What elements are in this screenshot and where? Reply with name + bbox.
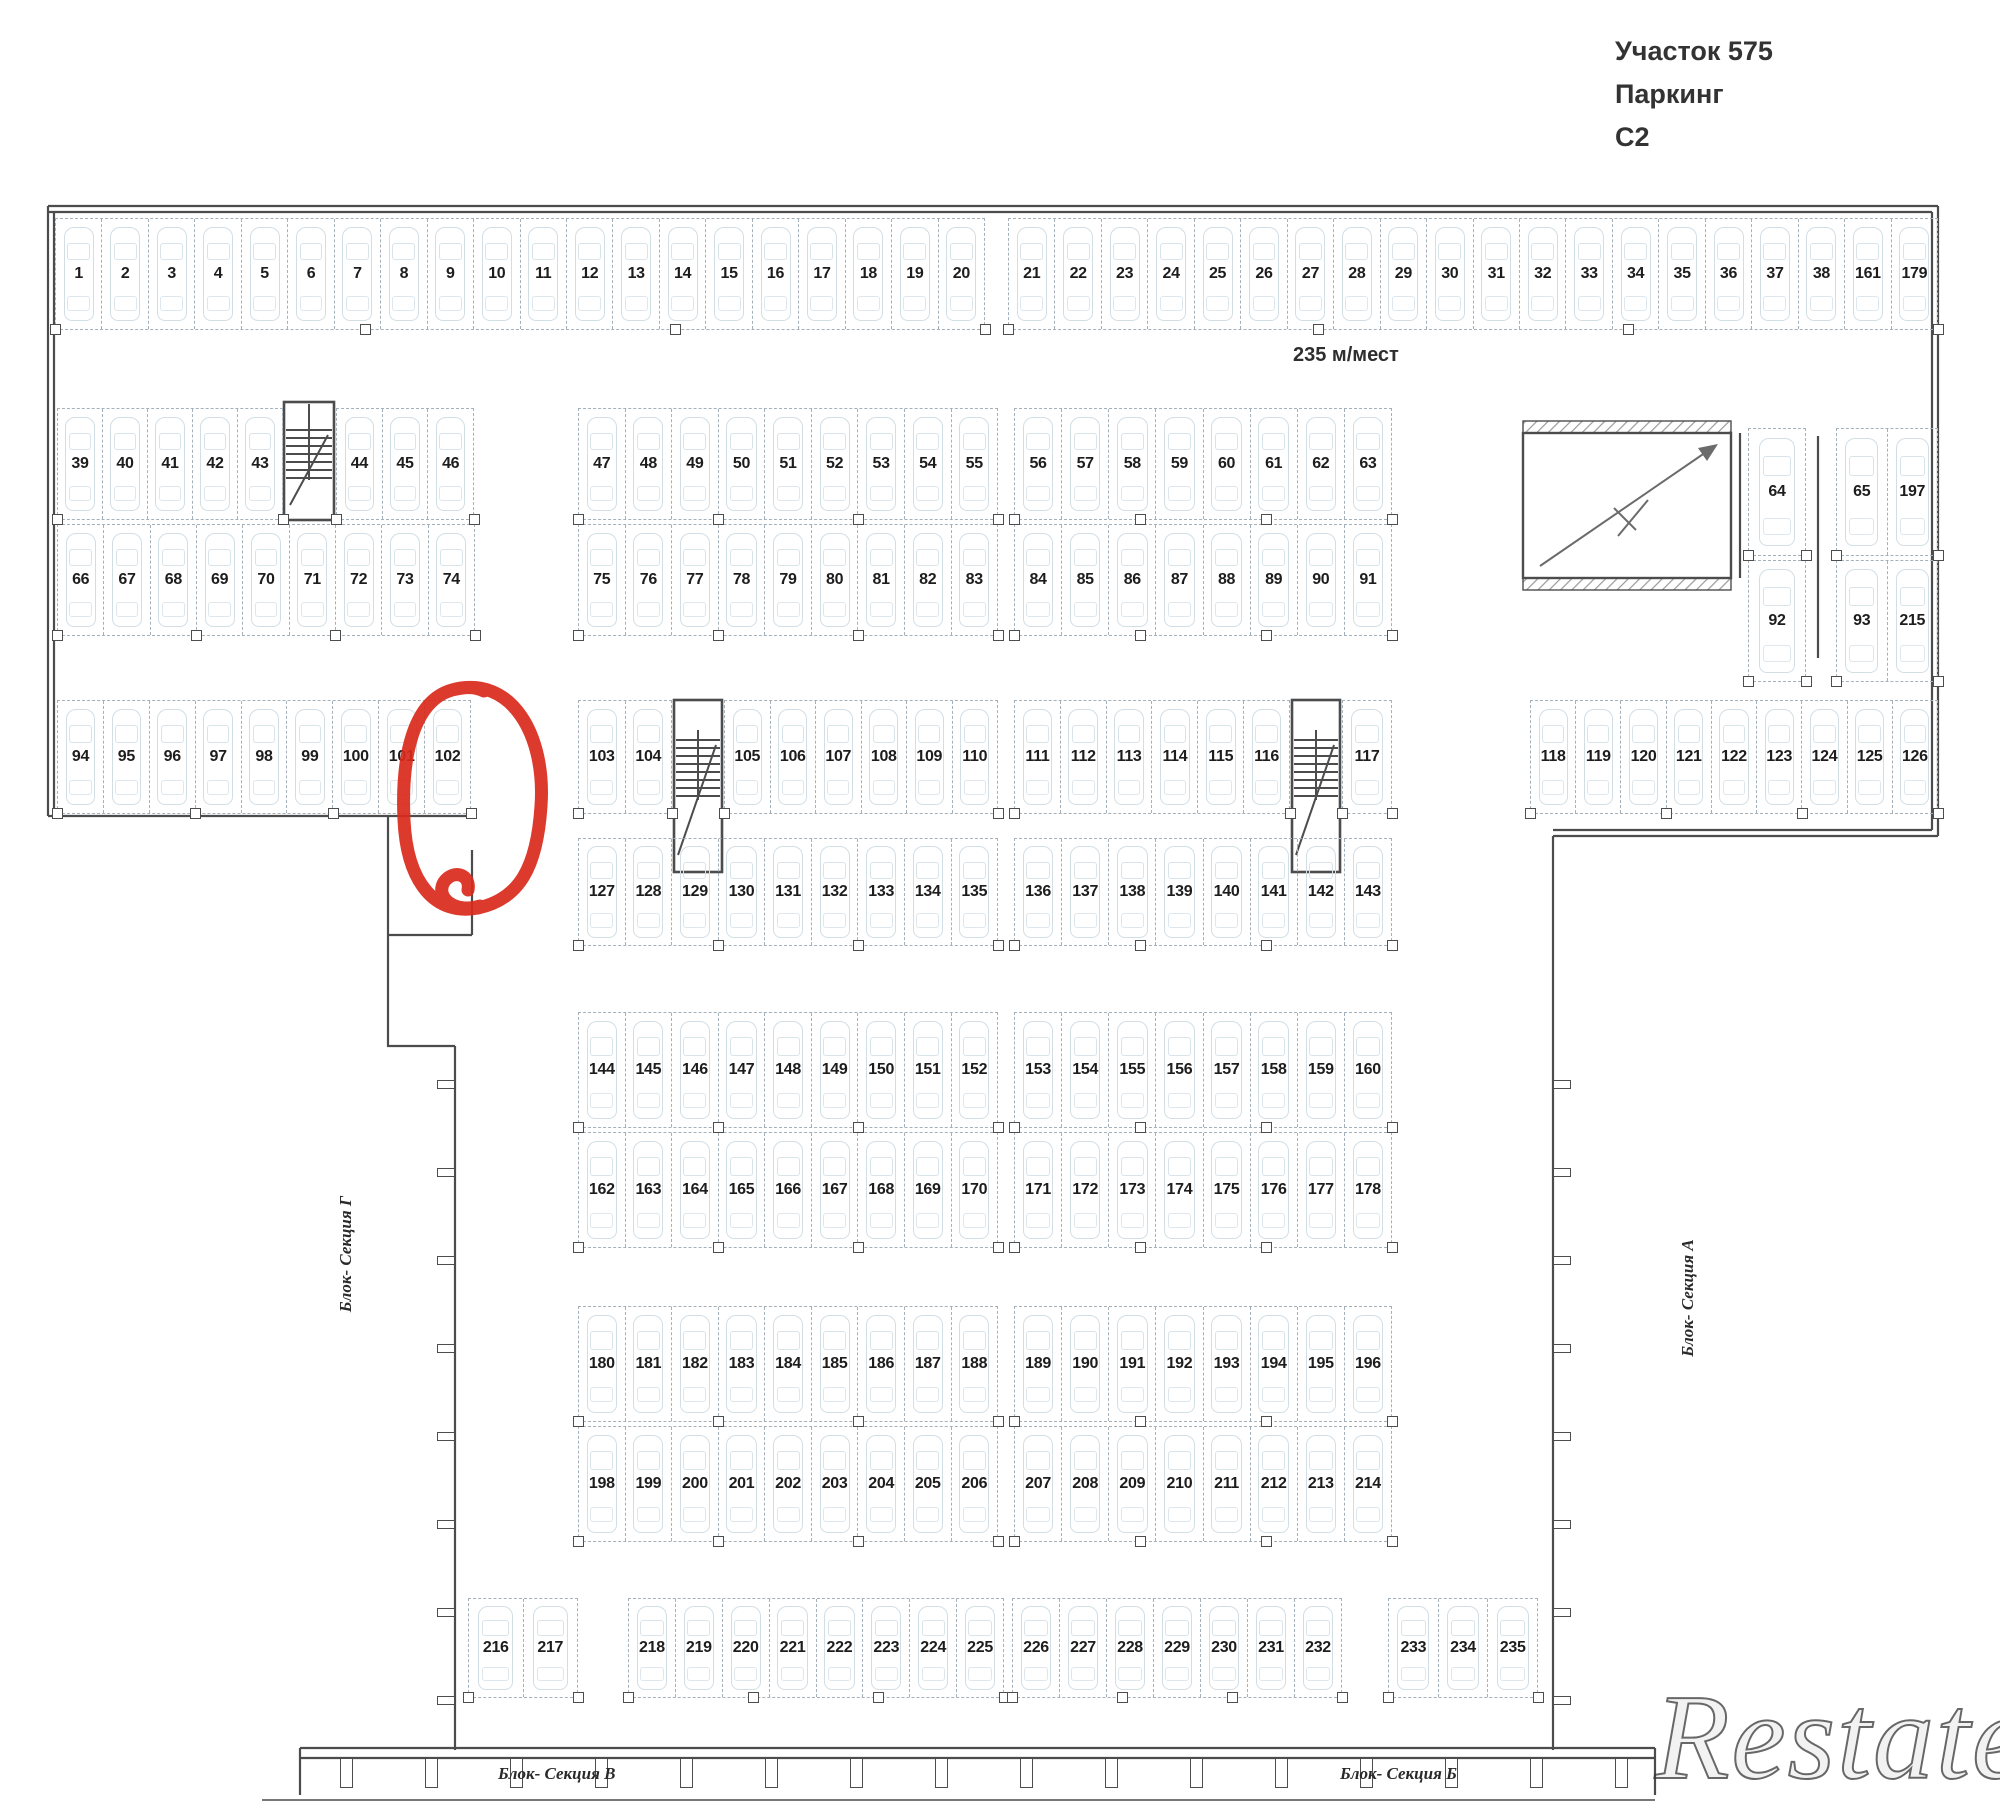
parking-spot-76: 76 bbox=[626, 525, 673, 635]
structural-column bbox=[1135, 1242, 1146, 1253]
spot-number: 172 bbox=[1072, 1181, 1098, 1199]
parking-spot-224: 224 bbox=[910, 1599, 957, 1697]
parking-spot-124: 124 bbox=[1802, 701, 1847, 813]
parking-spot-52: 52 bbox=[812, 409, 859, 519]
spot-number: 177 bbox=[1308, 1181, 1334, 1199]
parking-spot-102: 102 bbox=[425, 701, 470, 813]
wall-pilaster bbox=[437, 1256, 455, 1265]
parking-spot-61: 61 bbox=[1251, 409, 1298, 519]
parking-spot-195: 195 bbox=[1298, 1307, 1345, 1421]
parking-spot-177: 177 bbox=[1298, 1133, 1345, 1247]
spot-number: 218 bbox=[639, 1639, 665, 1657]
wall-column bbox=[340, 1758, 353, 1788]
structural-column bbox=[623, 1692, 634, 1703]
parking-spot-34: 34 bbox=[1613, 219, 1659, 329]
parking-spot-233: 233 bbox=[1389, 1599, 1439, 1697]
structural-column bbox=[573, 630, 584, 641]
spot-number: 179 bbox=[1901, 265, 1927, 283]
spot-number: 32 bbox=[1534, 265, 1551, 283]
section-label-bottom-right: Блок- Секция Б bbox=[1340, 1764, 1457, 1784]
plan-title-line3: С2 bbox=[1615, 116, 1773, 159]
structural-column bbox=[1387, 808, 1398, 819]
wall-pilaster bbox=[1553, 1080, 1571, 1089]
spot-number: 134 bbox=[915, 883, 941, 901]
spot-number: 228 bbox=[1117, 1639, 1143, 1657]
spot-number: 207 bbox=[1025, 1475, 1051, 1493]
parking-spot-29: 29 bbox=[1381, 219, 1427, 329]
spot-number: 9 bbox=[446, 265, 455, 283]
structural-column bbox=[1933, 808, 1944, 819]
spot-number: 129 bbox=[682, 883, 708, 901]
spot-number: 21 bbox=[1023, 265, 1040, 283]
watermark: Restate bbox=[1655, 1668, 2000, 1808]
spot-number: 115 bbox=[1208, 748, 1233, 766]
parking-spot-180: 180 bbox=[579, 1307, 626, 1421]
parking-spot-166: 166 bbox=[765, 1133, 812, 1247]
parking-spot-145: 145 bbox=[626, 1013, 673, 1127]
structural-column bbox=[1007, 1692, 1018, 1703]
wall-column bbox=[1105, 1758, 1118, 1788]
spot-number: 52 bbox=[826, 455, 843, 473]
parking-spot-219: 219 bbox=[676, 1599, 723, 1697]
spot-number: 55 bbox=[966, 455, 983, 473]
structural-column bbox=[748, 1692, 759, 1703]
capacity-note: 235 м/мест bbox=[1293, 344, 1399, 367]
structural-column bbox=[1135, 1416, 1146, 1427]
parking-row-group: 216217 bbox=[468, 1598, 578, 1698]
spot-number: 75 bbox=[593, 571, 610, 589]
spot-number: 64 bbox=[1768, 483, 1785, 501]
structural-column bbox=[1285, 808, 1296, 819]
spot-number: 213 bbox=[1308, 1475, 1334, 1493]
parking-spot-18: 18 bbox=[846, 219, 892, 329]
structural-column bbox=[466, 808, 477, 819]
structural-column bbox=[993, 1416, 1004, 1427]
spot-number: 189 bbox=[1025, 1355, 1051, 1373]
spot-number: 156 bbox=[1167, 1061, 1193, 1079]
parking-spot-128: 128 bbox=[626, 839, 673, 945]
structural-column bbox=[573, 808, 584, 819]
spot-number: 110 bbox=[962, 748, 987, 766]
wall-column bbox=[1615, 1758, 1628, 1788]
parking-spot-50: 50 bbox=[719, 409, 766, 519]
spot-number: 3 bbox=[167, 265, 176, 283]
parking-spot-49: 49 bbox=[672, 409, 719, 519]
parking-spot-205: 205 bbox=[905, 1427, 952, 1541]
parking-spot-96: 96 bbox=[150, 701, 196, 813]
spot-number: 37 bbox=[1766, 265, 1783, 283]
spot-number: 191 bbox=[1119, 1355, 1145, 1373]
parking-spot-84: 84 bbox=[1015, 525, 1062, 635]
parking-spot-126: 126 bbox=[1893, 701, 1937, 813]
structural-column bbox=[1261, 1242, 1272, 1253]
parking-spot-51: 51 bbox=[765, 409, 812, 519]
spot-number: 70 bbox=[257, 571, 274, 589]
spot-number: 132 bbox=[822, 883, 848, 901]
parking-spot-110: 110 bbox=[953, 701, 998, 813]
parking-spot-182: 182 bbox=[672, 1307, 719, 1421]
parking-row-group: 949596979899100101102 bbox=[57, 700, 471, 814]
spot-number: 27 bbox=[1302, 265, 1319, 283]
spot-number: 136 bbox=[1025, 883, 1051, 901]
spot-number: 196 bbox=[1355, 1355, 1381, 1373]
spot-number: 144 bbox=[589, 1061, 615, 1079]
spot-number: 131 bbox=[775, 883, 801, 901]
parking-spot-19: 19 bbox=[892, 219, 938, 329]
spot-number: 96 bbox=[164, 748, 181, 766]
structural-column bbox=[993, 1536, 1004, 1547]
structural-column bbox=[993, 1122, 1004, 1133]
wall-column bbox=[680, 1758, 693, 1788]
structural-column bbox=[52, 630, 63, 641]
spot-number: 8 bbox=[400, 265, 409, 283]
spot-number: 188 bbox=[961, 1355, 987, 1373]
parking-spot-167: 167 bbox=[812, 1133, 859, 1247]
parking-spot-191: 191 bbox=[1109, 1307, 1156, 1421]
spot-number: 93 bbox=[1853, 612, 1870, 630]
parking-spot-235: 235 bbox=[1488, 1599, 1537, 1697]
structural-column bbox=[328, 808, 339, 819]
structural-column bbox=[1009, 808, 1020, 819]
parking-row-group: 8485868788899091 bbox=[1014, 524, 1392, 636]
structural-column bbox=[1743, 550, 1754, 561]
stairwell-icon bbox=[284, 402, 334, 520]
parking-spot-70: 70 bbox=[243, 525, 289, 635]
spot-number: 150 bbox=[868, 1061, 894, 1079]
parking-spot-99: 99 bbox=[287, 701, 333, 813]
structural-column bbox=[1387, 1122, 1398, 1133]
spot-number: 225 bbox=[967, 1639, 993, 1657]
spot-number: 185 bbox=[822, 1355, 848, 1373]
parking-row-group: 444546 bbox=[336, 408, 474, 520]
parking-spot-74: 74 bbox=[429, 525, 474, 635]
parking-spot-186: 186 bbox=[858, 1307, 905, 1421]
spot-number: 235 bbox=[1500, 1639, 1526, 1657]
parking-spot-176: 176 bbox=[1251, 1133, 1298, 1247]
spot-number: 222 bbox=[827, 1639, 853, 1657]
spot-number: 39 bbox=[71, 455, 88, 473]
spot-number: 38 bbox=[1813, 265, 1830, 283]
spot-number: 202 bbox=[775, 1475, 801, 1493]
spot-number: 163 bbox=[635, 1181, 661, 1199]
spot-number: 72 bbox=[350, 571, 367, 589]
parking-spot-213: 213 bbox=[1298, 1427, 1345, 1541]
parking-row-group: 474849505152535455 bbox=[578, 408, 998, 520]
spot-number: 170 bbox=[961, 1181, 987, 1199]
wall-column bbox=[1530, 1758, 1543, 1788]
spot-number: 130 bbox=[729, 883, 755, 901]
structural-column bbox=[278, 514, 289, 525]
parking-spot-161: 161 bbox=[1845, 219, 1891, 329]
parking-spot-82: 82 bbox=[905, 525, 952, 635]
parking-spot-108: 108 bbox=[862, 701, 908, 813]
parking-spot-41: 41 bbox=[148, 409, 193, 519]
structural-column bbox=[713, 1122, 724, 1133]
section-label-right: Блок- Секция А bbox=[1678, 1218, 1698, 1378]
spot-number: 167 bbox=[822, 1181, 848, 1199]
spot-number: 5 bbox=[260, 265, 269, 283]
parking-spot-21: 21 bbox=[1009, 219, 1055, 329]
parking-row-group: 5657585960616263 bbox=[1014, 408, 1392, 520]
parking-spot-57: 57 bbox=[1062, 409, 1109, 519]
parking-row-group: 111112113114115116 bbox=[1014, 700, 1290, 814]
spot-number: 69 bbox=[211, 571, 228, 589]
parking-spot-47: 47 bbox=[579, 409, 626, 519]
spot-number: 18 bbox=[860, 265, 877, 283]
structural-column bbox=[1387, 1536, 1398, 1547]
parking-spot-170: 170 bbox=[952, 1133, 998, 1247]
structural-column bbox=[993, 808, 1004, 819]
parking-spot-172: 172 bbox=[1062, 1133, 1109, 1247]
parking-spot-94: 94 bbox=[58, 701, 104, 813]
structural-column bbox=[190, 808, 201, 819]
structural-column bbox=[1135, 1122, 1146, 1133]
structural-column bbox=[853, 514, 864, 525]
structural-column bbox=[360, 324, 371, 335]
parking-spot-150: 150 bbox=[858, 1013, 905, 1127]
spot-number: 141 bbox=[1261, 883, 1287, 901]
parking-row-group: 162163164165166167168169170 bbox=[578, 1132, 998, 1248]
parking-spot-159: 159 bbox=[1298, 1013, 1345, 1127]
structural-column bbox=[713, 1536, 724, 1547]
spot-number: 127 bbox=[589, 883, 615, 901]
parking-spot-234: 234 bbox=[1439, 1599, 1489, 1697]
structural-column bbox=[1261, 940, 1272, 951]
parking-spot-125: 125 bbox=[1848, 701, 1893, 813]
parking-spot-146: 146 bbox=[672, 1013, 719, 1127]
parking-spot-162: 162 bbox=[579, 1133, 626, 1247]
spot-number: 233 bbox=[1400, 1639, 1426, 1657]
spot-number: 101 bbox=[389, 748, 415, 766]
parking-spot-131: 131 bbox=[765, 839, 812, 945]
structural-column bbox=[713, 1416, 724, 1427]
section-label-bottom-left: Блок- Секция В bbox=[498, 1764, 615, 1784]
structural-column bbox=[1743, 676, 1754, 687]
spot-number: 66 bbox=[72, 571, 89, 589]
parking-spot-144: 144 bbox=[579, 1013, 626, 1127]
spot-number: 139 bbox=[1167, 883, 1193, 901]
spot-number: 33 bbox=[1581, 265, 1598, 283]
spot-number: 158 bbox=[1261, 1061, 1287, 1079]
spot-number: 63 bbox=[1359, 455, 1376, 473]
structural-column bbox=[330, 630, 341, 641]
spot-number: 48 bbox=[640, 455, 657, 473]
structural-column bbox=[469, 514, 480, 525]
spot-number: 200 bbox=[682, 1475, 708, 1493]
spot-number: 86 bbox=[1124, 571, 1141, 589]
parking-spot-13: 13 bbox=[613, 219, 659, 329]
spot-number: 102 bbox=[435, 748, 461, 766]
parking-spot-4: 4 bbox=[195, 219, 241, 329]
parking-spot-137: 137 bbox=[1062, 839, 1109, 945]
spot-number: 11 bbox=[535, 265, 551, 283]
spot-number: 176 bbox=[1261, 1181, 1287, 1199]
spot-number: 138 bbox=[1119, 883, 1145, 901]
parking-row-group: 757677787980818283 bbox=[578, 524, 998, 636]
parking-spot-27: 27 bbox=[1288, 219, 1334, 329]
parking-spot-20: 20 bbox=[939, 219, 984, 329]
structural-column bbox=[1261, 1416, 1272, 1427]
parking-spot-68: 68 bbox=[151, 525, 197, 635]
spot-number: 229 bbox=[1164, 1639, 1190, 1657]
spot-number: 15 bbox=[720, 265, 737, 283]
wall-pilaster bbox=[1553, 1432, 1571, 1441]
spot-number: 107 bbox=[825, 748, 851, 766]
parking-spot-88: 88 bbox=[1204, 525, 1251, 635]
parking-spot-77: 77 bbox=[672, 525, 719, 635]
spot-number: 58 bbox=[1124, 455, 1141, 473]
structural-column bbox=[993, 514, 1004, 525]
parking-spot-173: 173 bbox=[1109, 1133, 1156, 1247]
spot-number: 91 bbox=[1359, 571, 1376, 589]
parking-spot-152: 152 bbox=[952, 1013, 998, 1127]
parking-spot-63: 63 bbox=[1345, 409, 1391, 519]
structural-column bbox=[463, 1692, 474, 1703]
parking-floor-plan: 1234567891011121314151617181920212223242… bbox=[0, 0, 2000, 1816]
structural-column bbox=[1383, 1692, 1394, 1703]
structural-column bbox=[1009, 1242, 1020, 1253]
structural-column bbox=[1533, 1692, 1544, 1703]
structural-column bbox=[873, 1692, 884, 1703]
parking-spot-218: 218 bbox=[629, 1599, 676, 1697]
spot-number: 84 bbox=[1029, 571, 1046, 589]
parking-spot-45: 45 bbox=[383, 409, 429, 519]
spot-number: 147 bbox=[729, 1061, 755, 1079]
wall-column bbox=[1020, 1758, 1033, 1788]
spot-number: 121 bbox=[1676, 748, 1702, 766]
spot-number: 109 bbox=[916, 748, 942, 766]
parking-row-group: 218219220221222223224225 bbox=[628, 1598, 1004, 1698]
parking-spot-183: 183 bbox=[719, 1307, 766, 1421]
parking-spot-38: 38 bbox=[1799, 219, 1845, 329]
parking-spot-138: 138 bbox=[1109, 839, 1156, 945]
wall-pilaster bbox=[437, 1080, 455, 1089]
parking-spot-160: 160 bbox=[1345, 1013, 1391, 1127]
spot-number: 168 bbox=[868, 1181, 894, 1199]
spot-number: 116 bbox=[1254, 748, 1279, 766]
spot-number: 92 bbox=[1768, 612, 1785, 630]
structural-column bbox=[1313, 324, 1324, 335]
spot-number: 103 bbox=[589, 748, 615, 766]
spot-number: 212 bbox=[1261, 1475, 1287, 1493]
structural-column bbox=[713, 940, 724, 951]
parking-spot-2: 2 bbox=[102, 219, 148, 329]
structural-column bbox=[713, 1242, 724, 1253]
spot-number: 90 bbox=[1312, 571, 1329, 589]
parking-spot-230: 230 bbox=[1201, 1599, 1248, 1697]
spot-number: 205 bbox=[915, 1475, 941, 1493]
parking-row-group: 198199200201202203204205206 bbox=[578, 1426, 998, 1542]
structural-column bbox=[1227, 1692, 1238, 1703]
parking-spot-54: 54 bbox=[905, 409, 952, 519]
parking-spot-193: 193 bbox=[1204, 1307, 1251, 1421]
spot-number: 197 bbox=[1899, 483, 1925, 501]
structural-column bbox=[667, 808, 678, 819]
parking-spot-15: 15 bbox=[706, 219, 752, 329]
parking-spot-85: 85 bbox=[1062, 525, 1109, 635]
parking-spot-10: 10 bbox=[474, 219, 520, 329]
spot-number: 190 bbox=[1072, 1355, 1098, 1373]
structural-column bbox=[1801, 550, 1812, 561]
spot-number: 34 bbox=[1627, 265, 1644, 283]
parking-spot-142: 142 bbox=[1298, 839, 1345, 945]
spot-number: 31 bbox=[1488, 265, 1505, 283]
spot-number: 118 bbox=[1541, 748, 1566, 766]
parking-spot-221: 221 bbox=[770, 1599, 817, 1697]
structural-column bbox=[993, 630, 1004, 641]
wall-pilaster bbox=[1553, 1344, 1571, 1353]
spot-number: 231 bbox=[1258, 1639, 1284, 1657]
plan-title-line2: Паркинг bbox=[1615, 73, 1773, 116]
parking-row-group: 93215 bbox=[1836, 560, 1938, 682]
spot-number: 1 bbox=[74, 265, 83, 283]
spot-number: 194 bbox=[1261, 1355, 1287, 1373]
spot-number: 4 bbox=[214, 265, 223, 283]
parking-spot-206: 206 bbox=[952, 1427, 998, 1541]
parking-spot-16: 16 bbox=[753, 219, 799, 329]
spot-number: 166 bbox=[775, 1181, 801, 1199]
spot-number: 62 bbox=[1312, 455, 1329, 473]
parking-spot-58: 58 bbox=[1109, 409, 1156, 519]
spot-number: 226 bbox=[1023, 1639, 1049, 1657]
spot-number: 6 bbox=[307, 265, 316, 283]
spot-number: 181 bbox=[635, 1355, 661, 1373]
spot-number: 219 bbox=[686, 1639, 712, 1657]
parking-row-group: 207208209210211212213214 bbox=[1014, 1426, 1392, 1542]
parking-spot-25: 25 bbox=[1195, 219, 1241, 329]
wall-pilaster bbox=[1553, 1520, 1571, 1529]
parking-spot-154: 154 bbox=[1062, 1013, 1109, 1127]
spot-number: 97 bbox=[210, 748, 227, 766]
spot-number: 145 bbox=[635, 1061, 661, 1079]
spot-number: 164 bbox=[682, 1181, 708, 1199]
spot-number: 211 bbox=[1214, 1475, 1239, 1493]
parking-spot-209: 209 bbox=[1109, 1427, 1156, 1541]
wall-pilaster bbox=[437, 1168, 455, 1177]
spot-number: 42 bbox=[206, 455, 223, 473]
spot-number: 56 bbox=[1029, 455, 1046, 473]
spot-number: 142 bbox=[1308, 883, 1334, 901]
parking-spot-190: 190 bbox=[1062, 1307, 1109, 1421]
parking-spot-31: 31 bbox=[1474, 219, 1520, 329]
spot-number: 47 bbox=[593, 455, 610, 473]
structural-column bbox=[713, 514, 724, 525]
parking-spot-116: 116 bbox=[1244, 701, 1289, 813]
parking-spot-14: 14 bbox=[660, 219, 706, 329]
wall-column bbox=[935, 1758, 948, 1788]
parking-spot-151: 151 bbox=[905, 1013, 952, 1127]
spot-number: 159 bbox=[1308, 1061, 1334, 1079]
spot-number: 74 bbox=[443, 571, 460, 589]
structural-column bbox=[1387, 514, 1398, 525]
parking-spot-153: 153 bbox=[1015, 1013, 1062, 1127]
parking-spot-12: 12 bbox=[567, 219, 613, 329]
spot-number: 80 bbox=[826, 571, 843, 589]
structural-column bbox=[1387, 1242, 1398, 1253]
parking-spot-60: 60 bbox=[1204, 409, 1251, 519]
spot-number: 119 bbox=[1586, 748, 1611, 766]
structural-column bbox=[1933, 324, 1944, 335]
structural-column bbox=[1009, 630, 1020, 641]
parking-spot-83: 83 bbox=[952, 525, 998, 635]
spot-number: 148 bbox=[775, 1061, 801, 1079]
spot-number: 157 bbox=[1214, 1061, 1240, 1079]
structural-column bbox=[1135, 630, 1146, 641]
wall-pilaster bbox=[1553, 1608, 1571, 1617]
spot-number: 73 bbox=[396, 571, 413, 589]
spot-number: 117 bbox=[1355, 748, 1380, 766]
spot-number: 98 bbox=[255, 748, 272, 766]
